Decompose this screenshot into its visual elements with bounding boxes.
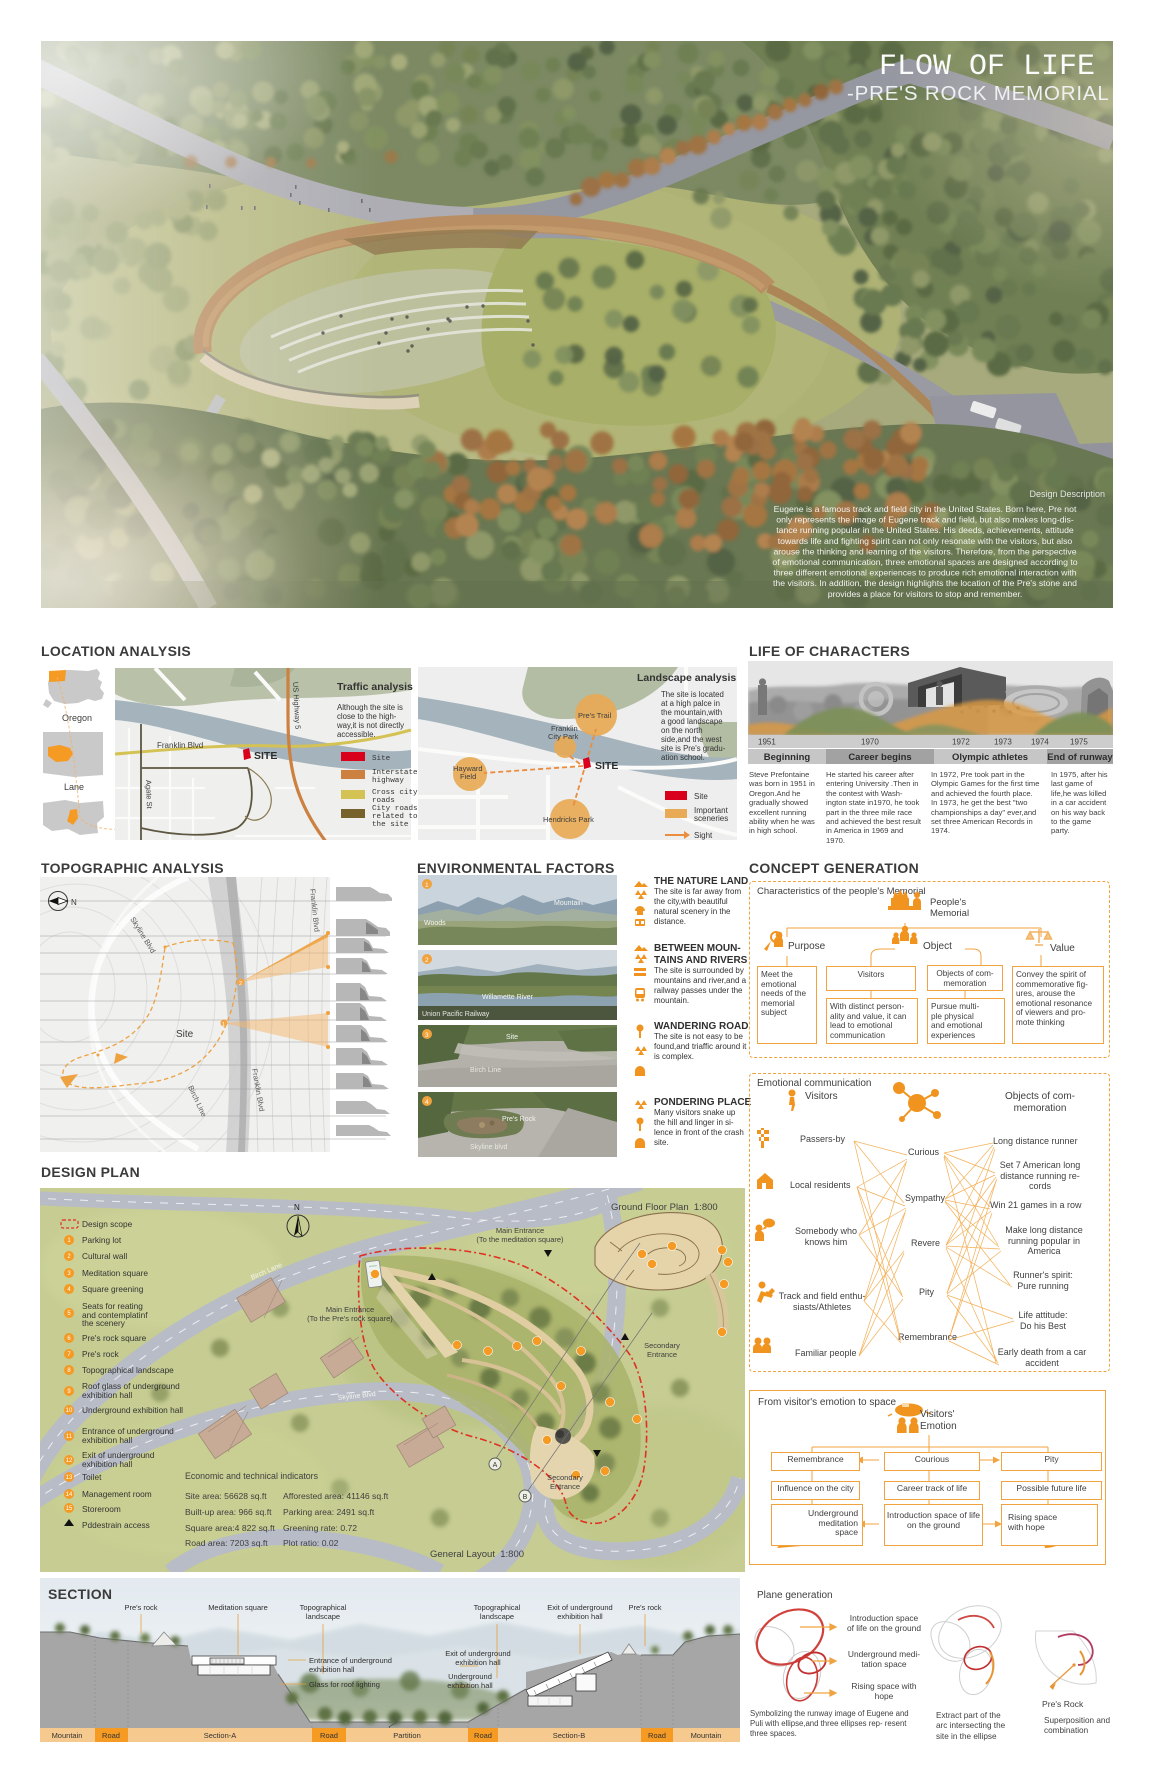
svg-text:exhibition hall: exhibition hall xyxy=(557,1612,603,1621)
svg-text:-PRE'S ROCK MEMORIAL: -PRE'S ROCK MEMORIAL xyxy=(847,82,1110,105)
svg-text:towards life and fighting spir: towards life and fighting spirit can not… xyxy=(778,536,1073,546)
svg-text:Topographical: Topographical xyxy=(474,1603,521,1612)
svg-text:Glass for roof lighting: Glass for roof lighting xyxy=(309,1680,380,1689)
svg-text:2: 2 xyxy=(239,981,242,987)
svg-text:14: 14 xyxy=(66,1492,73,1498)
svg-text:City Park: City Park xyxy=(548,732,579,741)
svg-text:1973: 1973 xyxy=(994,738,1012,747)
svg-text:Union Pacific Railway: Union Pacific Railway xyxy=(422,1011,490,1018)
svg-text:Skyline blvd: Skyline blvd xyxy=(470,1144,507,1151)
svg-text:close to the high-: close to the high- xyxy=(337,712,397,721)
svg-text:Lane: Lane xyxy=(64,782,84,792)
svg-text:only represents the image of E: only represents the image of Eugene trac… xyxy=(776,515,1074,525)
svg-text:Pre's Trail: Pre's Trail xyxy=(578,711,611,720)
svg-text:ation school.: ation school. xyxy=(661,753,705,762)
svg-text:Interstate: Interstate xyxy=(372,769,418,777)
svg-text:4: 4 xyxy=(425,1099,429,1106)
svg-text:Section-A: Section-A xyxy=(204,1731,237,1740)
svg-text:Meditation square: Meditation square xyxy=(208,1603,268,1612)
svg-text:1: 1 xyxy=(222,1022,225,1028)
svg-text:of emotional communication, th: of emotional communication, three emotio… xyxy=(772,557,1077,567)
svg-text:Exit of underground: Exit of underground xyxy=(445,1649,510,1658)
svg-text:accessible.: accessible. xyxy=(337,730,376,739)
svg-text:exhibition hall: exhibition hall xyxy=(455,1658,501,1667)
svg-text:Road: Road xyxy=(648,1731,666,1740)
svg-text:on the north: on the north xyxy=(661,726,703,735)
svg-text:City roads: City roads xyxy=(372,805,418,813)
svg-text:Franklin Blvd: Franklin Blvd xyxy=(157,741,203,750)
svg-text:the visitors. In addition, the: the visitors. In addition, the design hi… xyxy=(773,578,1077,588)
svg-text:Woods: Woods xyxy=(424,920,446,927)
svg-text:1974: 1974 xyxy=(1031,738,1049,747)
svg-text:Cross city: Cross city xyxy=(372,789,418,797)
svg-text:B: B xyxy=(523,1494,528,1501)
svg-text:15: 15 xyxy=(66,1506,73,1512)
svg-text:the mountain,with: the mountain,with xyxy=(661,708,722,717)
svg-text:site is Pre's gradu-: site is Pre's gradu- xyxy=(661,744,726,753)
svg-text:provides a place for visitors: provides a place for visitors to stop an… xyxy=(828,589,1023,599)
svg-text:1970: 1970 xyxy=(861,738,879,747)
svg-text:Olympic athletes: Olympic athletes xyxy=(952,752,1028,763)
svg-text:Pre's rock: Pre's rock xyxy=(124,1603,157,1612)
svg-text:Willamette River: Willamette River xyxy=(482,994,534,1001)
svg-text:Pre's Rock: Pre's Rock xyxy=(502,1116,536,1123)
svg-text:Exit of underground: Exit of underground xyxy=(547,1603,612,1612)
svg-text:Section-B: Section-B xyxy=(553,1731,586,1740)
svg-text:exhibition hall: exhibition hall xyxy=(447,1681,493,1690)
svg-text:sceneries: sceneries xyxy=(694,814,728,823)
svg-text:N: N xyxy=(294,1203,300,1212)
svg-text:Site: Site xyxy=(506,1034,518,1041)
svg-text:11: 11 xyxy=(66,1434,73,1440)
svg-text:Sight: Sight xyxy=(694,831,713,840)
svg-text:Traffic analysis: Traffic analysis xyxy=(337,681,413,693)
svg-text:arouse the thinking and learni: arouse the thinking and learning of the … xyxy=(773,546,1076,556)
svg-text:1: 1 xyxy=(425,882,429,889)
svg-text:Road: Road xyxy=(102,1731,120,1740)
svg-text:3: 3 xyxy=(425,1032,429,1039)
svg-text:a good landscape: a good landscape xyxy=(661,717,723,726)
svg-text:related to: related to xyxy=(372,813,418,821)
svg-text:13: 13 xyxy=(66,1475,73,1481)
svg-text:exhibition hall: exhibition hall xyxy=(309,1665,355,1674)
svg-text:Eugene is a famous track and f: Eugene is a famous track and field city … xyxy=(774,504,1077,514)
svg-text:Road: Road xyxy=(320,1731,338,1740)
svg-text:End of runway: End of runway xyxy=(1047,752,1113,763)
svg-text:A: A xyxy=(493,1462,498,1469)
svg-text:SITE: SITE xyxy=(254,750,277,762)
svg-text:Mountain: Mountain xyxy=(554,900,583,907)
svg-text:12: 12 xyxy=(66,1458,73,1464)
svg-text:side,and the west: side,and the west xyxy=(661,735,723,744)
svg-text:FLOW OF LIFE: FLOW OF LIFE xyxy=(879,50,1095,84)
svg-text:1975: 1975 xyxy=(1070,738,1088,747)
svg-text:N: N xyxy=(71,898,77,907)
svg-text:the site: the site xyxy=(372,821,409,829)
svg-text:Underground: Underground xyxy=(448,1672,492,1681)
svg-text:roads: roads xyxy=(372,797,395,805)
svg-text:Topographical: Topographical xyxy=(300,1603,347,1612)
svg-text:Partition: Partition xyxy=(393,1731,421,1740)
svg-text:at a high palce in: at a high palce in xyxy=(661,699,720,708)
svg-text:2: 2 xyxy=(425,957,429,964)
svg-text:Mountain: Mountain xyxy=(691,1731,722,1740)
svg-text:Eugene: Eugene xyxy=(54,839,85,840)
svg-text:landscape: landscape xyxy=(480,1612,514,1621)
svg-text:Beginning: Beginning xyxy=(764,752,811,763)
svg-text:Design Description: Design Description xyxy=(1029,489,1105,499)
svg-text:Road: Road xyxy=(474,1731,492,1740)
svg-text:Pre's rock: Pre's rock xyxy=(628,1603,661,1612)
svg-text:Although the site is: Although the site is xyxy=(337,703,403,712)
svg-text:highway: highway xyxy=(372,777,404,785)
svg-text:Site: Site xyxy=(176,1029,194,1040)
svg-text:Landscape analysis: Landscape analysis xyxy=(637,672,736,684)
svg-text:landscape: landscape xyxy=(306,1612,340,1621)
svg-text:way,it is not directly: way,it is not directly xyxy=(336,721,404,730)
svg-text:Mountain: Mountain xyxy=(52,1731,83,1740)
svg-text:The site is located: The site is located xyxy=(661,690,724,699)
svg-text:SITE: SITE xyxy=(595,760,618,772)
svg-text:Oregon: Oregon xyxy=(62,713,92,723)
svg-text:tance running popular in the U: tance running popular in the United Stat… xyxy=(776,525,1074,535)
svg-text:Site: Site xyxy=(372,755,391,763)
svg-text:Birch Line: Birch Line xyxy=(470,1067,501,1074)
svg-text:Career begins: Career begins xyxy=(848,752,911,763)
svg-text:Site: Site xyxy=(694,792,708,801)
svg-text:Agate St: Agate St xyxy=(144,780,154,810)
svg-text:Hendricks Park: Hendricks Park xyxy=(543,815,594,824)
svg-text:1972: 1972 xyxy=(952,738,970,747)
svg-text:Field: Field xyxy=(460,772,476,781)
svg-text:Entrance of underground: Entrance of underground xyxy=(309,1656,392,1665)
svg-text:three different emotional expe: three different emotional experiences to… xyxy=(773,568,1076,578)
svg-text:10: 10 xyxy=(66,1408,73,1414)
svg-text:1951: 1951 xyxy=(758,738,776,747)
